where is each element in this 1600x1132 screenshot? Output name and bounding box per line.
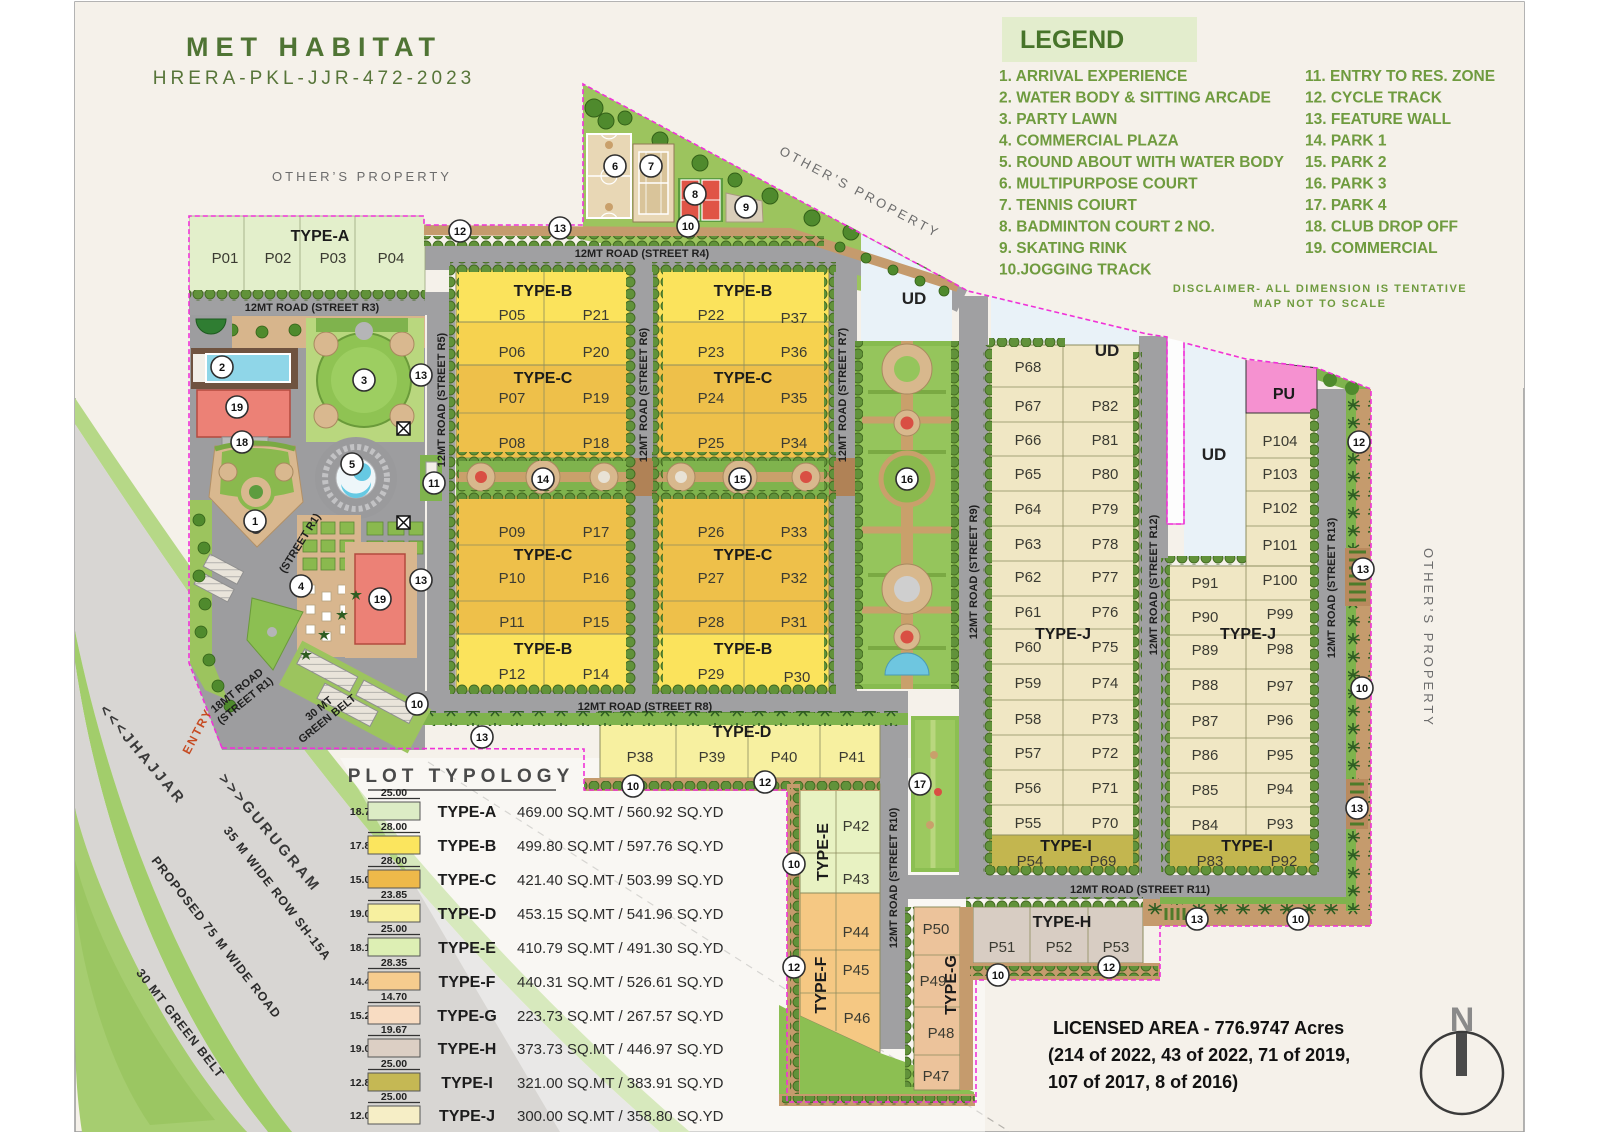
svg-text:2. WATER BODY & SITTING ARCADE: 2. WATER BODY & SITTING ARCADE <box>999 90 1271 107</box>
svg-text:12MT ROAD (STREET R5): 12MT ROAD (STREET R5) <box>436 332 448 467</box>
svg-text:12: 12 <box>1353 437 1365 449</box>
svg-text:P41: P41 <box>839 749 866 766</box>
svg-text:P56: P56 <box>1015 780 1042 797</box>
svg-text:P94: P94 <box>1267 781 1294 798</box>
svg-text:N: N <box>1450 1001 1475 1039</box>
svg-text:P06: P06 <box>499 344 526 361</box>
svg-text:10: 10 <box>682 221 694 233</box>
svg-text:P26: P26 <box>698 524 725 541</box>
svg-text:P89: P89 <box>1192 642 1219 659</box>
svg-text:P28: P28 <box>698 614 725 631</box>
svg-text:469.00 SQ.MT / 560.92 SQ.YD: 469.00 SQ.MT / 560.92 SQ.YD <box>517 804 724 821</box>
svg-text:13. FEATURE WALL: 13. FEATURE WALL <box>1305 111 1451 128</box>
svg-text:TYPE-F: TYPE-F <box>813 956 830 1013</box>
svg-text:P35: P35 <box>781 390 808 407</box>
svg-text:P05: P05 <box>499 307 526 324</box>
svg-text:TYPE-G: TYPE-G <box>437 1008 497 1025</box>
svg-text:18: 18 <box>236 437 248 449</box>
svg-text:P84: P84 <box>1192 817 1219 834</box>
svg-text:25.00: 25.00 <box>381 923 407 935</box>
svg-text:P91: P91 <box>1192 575 1219 592</box>
svg-text:P80: P80 <box>1092 466 1119 483</box>
svg-text:12MT ROAD (STREET R4): 12MT ROAD (STREET R4) <box>575 248 710 260</box>
svg-text:P33: P33 <box>781 524 808 541</box>
svg-text:UD: UD <box>902 289 927 308</box>
svg-text:19: 19 <box>231 402 243 414</box>
svg-text:P04: P04 <box>378 250 405 267</box>
svg-text:2: 2 <box>219 362 225 374</box>
svg-text:25.00: 25.00 <box>381 787 407 799</box>
svg-text:P64: P64 <box>1015 501 1042 518</box>
svg-text:HRERA-PKL-JJR-472-2023: HRERA-PKL-JJR-472-2023 <box>153 68 475 89</box>
svg-text:13: 13 <box>1191 914 1203 926</box>
svg-text:P67: P67 <box>1015 398 1042 415</box>
svg-text:P86: P86 <box>1192 747 1219 764</box>
svg-text:12: 12 <box>759 777 771 789</box>
svg-text:P72: P72 <box>1092 745 1119 762</box>
svg-text:P25: P25 <box>698 435 725 452</box>
svg-text:12: 12 <box>454 226 466 238</box>
svg-text:12MT ROAD (STREET R9): 12MT ROAD (STREET R9) <box>968 504 980 639</box>
svg-text:19. COMMERCIAL: 19. COMMERCIAL <box>1305 240 1438 257</box>
svg-text:TYPE-D: TYPE-D <box>713 724 772 741</box>
svg-text:P87: P87 <box>1192 713 1219 730</box>
svg-text:P93: P93 <box>1267 816 1294 833</box>
svg-text:TYPE-C: TYPE-C <box>514 547 573 564</box>
svg-text:(214 of 2022, 43 of 2022, 71 o: (214 of 2022, 43 of 2022, 71 of 2019, <box>1048 1045 1350 1065</box>
svg-text:1. ARRIVAL EXPERIENCE: 1. ARRIVAL EXPERIENCE <box>999 68 1187 85</box>
svg-text:28.00: 28.00 <box>381 855 407 867</box>
svg-text:P40: P40 <box>771 749 798 766</box>
svg-text:16. PARK 3: 16. PARK 3 <box>1305 176 1387 193</box>
svg-text:373.73 SQ.MT / 446.97 SQ.YD: 373.73 SQ.MT / 446.97 SQ.YD <box>517 1041 724 1058</box>
svg-text:MET HABITAT: MET HABITAT <box>186 32 442 62</box>
svg-text:P75: P75 <box>1092 639 1119 656</box>
svg-text:P10: P10 <box>499 570 526 587</box>
svg-text:TYPE-C: TYPE-C <box>714 547 773 564</box>
svg-text:TYPE-C: TYPE-C <box>438 872 497 889</box>
svg-text:P08: P08 <box>499 435 526 452</box>
svg-text:6. MULTIPURPOSE COURT: 6. MULTIPURPOSE COURT <box>999 176 1198 193</box>
svg-text:TYPE-A: TYPE-A <box>438 804 497 821</box>
svg-text:P98: P98 <box>1267 641 1294 658</box>
svg-text:P71: P71 <box>1092 780 1119 797</box>
svg-text:P01: P01 <box>212 250 239 267</box>
svg-text:TYPE-A: TYPE-A <box>291 228 350 245</box>
svg-text:P23: P23 <box>698 344 725 361</box>
svg-text:P57: P57 <box>1015 745 1042 762</box>
svg-text:P60: P60 <box>1015 639 1042 656</box>
svg-text:P02: P02 <box>265 250 292 267</box>
svg-text:P47: P47 <box>923 1068 950 1085</box>
svg-text:P90: P90 <box>1192 609 1219 626</box>
svg-text:18. CLUB DROP OFF: 18. CLUB DROP OFF <box>1305 219 1458 236</box>
svg-text:25.00: 25.00 <box>381 1058 407 1070</box>
svg-text:P14: P14 <box>583 666 610 683</box>
svg-text:17: 17 <box>914 779 926 791</box>
svg-text:12MT ROAD (STREET R6): 12MT ROAD (STREET R6) <box>638 327 650 462</box>
svg-text:TYPE-I: TYPE-I <box>441 1075 493 1092</box>
svg-text:14: 14 <box>537 474 550 486</box>
svg-text:TYPE-H: TYPE-H <box>1033 914 1092 931</box>
svg-text:P95: P95 <box>1267 747 1294 764</box>
svg-text:12: 12 <box>1103 962 1115 974</box>
svg-text:15. PARK 2: 15. PARK 2 <box>1305 154 1387 171</box>
svg-text:440.31 SQ.MT / 526.61 SQ.YD: 440.31 SQ.MT / 526.61 SQ.YD <box>517 974 724 991</box>
svg-text:10: 10 <box>411 699 423 711</box>
svg-text:UD: UD <box>1202 445 1227 464</box>
svg-text:P39: P39 <box>699 749 726 766</box>
svg-text:TYPE-B: TYPE-B <box>714 641 773 658</box>
svg-text:P29: P29 <box>698 666 725 683</box>
svg-text:P09: P09 <box>499 524 526 541</box>
svg-text:TYPE-B: TYPE-B <box>714 283 773 300</box>
svg-text:P76: P76 <box>1092 604 1119 621</box>
svg-text:11. ENTRY TO RES. ZONE: 11. ENTRY TO RES. ZONE <box>1305 68 1495 85</box>
svg-text:P38: P38 <box>627 749 654 766</box>
svg-text:TYPE-I: TYPE-I <box>1040 838 1092 855</box>
svg-text:410.79 SQ.MT / 491.30 SQ.YD: 410.79 SQ.MT / 491.30 SQ.YD <box>517 940 724 957</box>
svg-text:P27: P27 <box>698 570 725 587</box>
svg-text:P11: P11 <box>499 614 525 631</box>
svg-text:13: 13 <box>476 732 488 744</box>
svg-text:23.85: 23.85 <box>381 889 407 901</box>
svg-text:5. ROUND ABOUT WITH WATER BODY: 5. ROUND ABOUT WITH WATER BODY <box>999 154 1285 171</box>
svg-text:3. PARTY LAWN: 3. PARTY LAWN <box>999 111 1117 128</box>
svg-text:P63: P63 <box>1015 536 1042 553</box>
svg-text:P12: P12 <box>499 666 526 683</box>
svg-text:TYPE-B: TYPE-B <box>438 838 497 855</box>
svg-text:453.15 SQ.MT / 541.96 SQ.YD: 453.15 SQ.MT / 541.96 SQ.YD <box>517 906 724 923</box>
svg-text:321.00 SQ.MT / 383.91 SQ.YD: 321.00 SQ.MT / 383.91 SQ.YD <box>517 1075 724 1092</box>
svg-text:P66: P66 <box>1015 432 1042 449</box>
svg-text:P103: P103 <box>1262 466 1297 483</box>
svg-text:TYPE-J: TYPE-J <box>1035 626 1091 643</box>
svg-text:4. COMMERCIAL PLAZA: 4. COMMERCIAL PLAZA <box>999 133 1179 150</box>
svg-text:12MT ROAD (STREET R12): 12MT ROAD (STREET R12) <box>1148 514 1160 655</box>
svg-text:P79: P79 <box>1092 501 1119 518</box>
svg-text:499.80 SQ.MT / 597.76 SQ.YD: 499.80 SQ.MT / 597.76 SQ.YD <box>517 838 724 855</box>
svg-text:P102: P102 <box>1262 500 1297 517</box>
svg-text:TYPE-B: TYPE-B <box>514 641 573 658</box>
svg-text:421.40 SQ.MT / 503.99 SQ.YD: 421.40 SQ.MT / 503.99 SQ.YD <box>517 872 724 889</box>
svg-text:12MT ROAD (STREET R11): 12MT ROAD (STREET R11) <box>1070 884 1210 896</box>
svg-text:P88: P88 <box>1192 677 1219 694</box>
svg-text:P03: P03 <box>320 250 347 267</box>
svg-text:P44: P44 <box>843 924 870 941</box>
svg-text:300.00 SQ.MT / 358.80 SQ.YD: 300.00 SQ.MT / 358.80 SQ.YD <box>517 1108 724 1125</box>
svg-text:12MT ROAD (STREET R8): 12MT ROAD (STREET R8) <box>578 701 713 713</box>
svg-text:14.70: 14.70 <box>381 991 407 1003</box>
svg-text:P97: P97 <box>1267 678 1294 695</box>
svg-text:14. PARK 1: 14. PARK 1 <box>1305 133 1387 150</box>
svg-text:TYPE-D: TYPE-D <box>438 906 497 923</box>
svg-text:P53: P53 <box>1103 939 1130 956</box>
svg-text:19.67: 19.67 <box>381 1024 407 1036</box>
svg-text:28.35: 28.35 <box>381 957 407 969</box>
svg-text:P49: P49 <box>920 973 947 990</box>
svg-text:P20: P20 <box>583 344 610 361</box>
svg-text:LICENSED AREA - 776.9747 Acres: LICENSED AREA - 776.9747 Acres <box>1053 1018 1344 1038</box>
svg-text:P99: P99 <box>1267 606 1294 623</box>
svg-text:UD: UD <box>1095 341 1120 360</box>
svg-text:10: 10 <box>992 970 1004 982</box>
svg-text:P22: P22 <box>698 307 725 324</box>
svg-text:10.JOGGING TRACK: 10.JOGGING TRACK <box>999 262 1152 279</box>
svg-text:12MT ROAD (STREET R13): 12MT ROAD (STREET R13) <box>1326 517 1338 658</box>
svg-text:12MT ROAD (STREET R7): 12MT ROAD (STREET R7) <box>837 327 849 462</box>
svg-text:P42: P42 <box>843 818 870 835</box>
svg-text:P77: P77 <box>1092 569 1119 586</box>
svg-text:P62: P62 <box>1015 569 1042 586</box>
svg-text:19: 19 <box>374 594 386 606</box>
svg-text:DISCLAIMER- ALL DIMENSION IS T: DISCLAIMER- ALL DIMENSION IS TENTATIVE <box>1173 283 1467 295</box>
svg-text:10: 10 <box>788 859 800 871</box>
svg-text:P74: P74 <box>1092 675 1119 692</box>
svg-text:11: 11 <box>428 478 440 490</box>
svg-text:P43: P43 <box>843 871 870 888</box>
svg-text:28.00: 28.00 <box>381 821 407 833</box>
svg-text:P59: P59 <box>1015 675 1042 692</box>
svg-text:P65: P65 <box>1015 466 1042 483</box>
svg-text:P82: P82 <box>1092 398 1119 415</box>
svg-text:P34: P34 <box>781 435 808 452</box>
svg-text:25.00: 25.00 <box>381 1091 407 1103</box>
svg-text:10: 10 <box>627 781 639 793</box>
svg-text:P18: P18 <box>583 435 610 452</box>
svg-text:TYPE-H: TYPE-H <box>438 1041 497 1058</box>
svg-text:P100: P100 <box>1262 572 1297 589</box>
svg-text:13: 13 <box>554 223 566 235</box>
svg-text:8: 8 <box>692 189 698 201</box>
svg-text:P52: P52 <box>1046 939 1073 956</box>
svg-text:8. BADMINTON COURT 2 NO.: 8. BADMINTON COURT 2 NO. <box>999 219 1215 236</box>
svg-text:P85: P85 <box>1192 782 1219 799</box>
svg-text:P24: P24 <box>698 390 725 407</box>
svg-text:107 of 2017, 8 of 2016): 107 of 2017, 8 of 2016) <box>1048 1072 1238 1092</box>
svg-text:12: 12 <box>788 962 800 974</box>
svg-text:TYPE-E: TYPE-E <box>438 940 496 957</box>
svg-text:P51: P51 <box>989 939 1016 956</box>
svg-text:6: 6 <box>612 161 618 173</box>
svg-text:7. TENNIS COIURT: 7. TENNIS COIURT <box>999 197 1137 214</box>
svg-text:P17: P17 <box>583 524 610 541</box>
svg-text:P45: P45 <box>843 962 870 979</box>
svg-text:7: 7 <box>648 161 654 173</box>
svg-text:P68: P68 <box>1015 359 1042 376</box>
svg-text:223.73 SQ.MT / 267.57 SQ.YD: 223.73 SQ.MT / 267.57 SQ.YD <box>517 1008 724 1025</box>
svg-text:PU: PU <box>1273 386 1295 403</box>
svg-text:17. PARK 4: 17. PARK 4 <box>1305 197 1387 214</box>
svg-text:P30: P30 <box>784 669 811 686</box>
svg-text:P07: P07 <box>499 390 526 407</box>
svg-text:P36: P36 <box>781 344 808 361</box>
svg-text:P81: P81 <box>1092 432 1119 449</box>
svg-text:PLOT TYPOLOGY: PLOT TYPOLOGY <box>348 766 575 787</box>
svg-text:13: 13 <box>415 575 427 587</box>
svg-text:9: 9 <box>743 202 749 214</box>
svg-text:TYPE-C: TYPE-C <box>514 370 573 387</box>
svg-text:TYPE-J: TYPE-J <box>439 1108 495 1125</box>
svg-text:12MT ROAD (STREET R10): 12MT ROAD (STREET R10) <box>888 807 900 948</box>
svg-text:1: 1 <box>252 516 258 528</box>
svg-text:3: 3 <box>361 375 367 387</box>
svg-text:5: 5 <box>349 459 355 471</box>
svg-text:15: 15 <box>734 474 746 486</box>
svg-text:12MT ROAD (STREET R3): 12MT ROAD (STREET R3) <box>245 302 380 314</box>
svg-text:10: 10 <box>1292 914 1304 926</box>
svg-text:9. SKATING RINK: 9. SKATING RINK <box>999 240 1128 257</box>
svg-text:P70: P70 <box>1092 815 1119 832</box>
svg-text:P48: P48 <box>928 1025 955 1042</box>
svg-text:OTHER’S PROPERTY: OTHER’S PROPERTY <box>1421 548 1436 728</box>
svg-text:TYPE-B: TYPE-B <box>514 283 573 300</box>
svg-text:13: 13 <box>1351 803 1363 815</box>
svg-text:MAP NOT TO SCALE: MAP NOT TO SCALE <box>1254 298 1387 310</box>
svg-text:P32: P32 <box>781 570 808 587</box>
svg-text:P101: P101 <box>1262 537 1297 554</box>
svg-text:13: 13 <box>1357 564 1369 576</box>
svg-text:P50: P50 <box>923 921 950 938</box>
svg-text:P15: P15 <box>583 614 610 631</box>
svg-text:P55: P55 <box>1015 815 1042 832</box>
svg-text:P58: P58 <box>1015 711 1042 728</box>
svg-text:P16: P16 <box>583 570 610 587</box>
svg-text:P19: P19 <box>583 390 610 407</box>
svg-text:P78: P78 <box>1092 536 1119 553</box>
svg-text:12. CYCLE TRACK: 12. CYCLE TRACK <box>1305 90 1443 107</box>
svg-text:10: 10 <box>1356 683 1368 695</box>
svg-text:P46: P46 <box>844 1010 871 1027</box>
svg-text:P73: P73 <box>1092 711 1119 728</box>
svg-text:P61: P61 <box>1015 604 1042 621</box>
svg-text:TYPE-I: TYPE-I <box>1221 838 1273 855</box>
svg-text:TYPE-C: TYPE-C <box>714 370 773 387</box>
svg-text:LEGEND: LEGEND <box>1020 26 1124 54</box>
svg-text:16: 16 <box>901 474 913 486</box>
svg-text:P96: P96 <box>1267 712 1294 729</box>
svg-text:TYPE-E: TYPE-E <box>815 823 832 881</box>
svg-text:P104: P104 <box>1262 433 1297 450</box>
svg-text:4: 4 <box>298 581 305 593</box>
svg-text:P21: P21 <box>583 307 610 324</box>
svg-text:TYPE-F: TYPE-F <box>439 974 496 991</box>
svg-text:OTHER’S PROPERTY: OTHER’S PROPERTY <box>272 169 452 184</box>
svg-text:13: 13 <box>415 370 427 382</box>
svg-text:P31: P31 <box>781 614 808 631</box>
svg-text:P37: P37 <box>781 310 808 327</box>
